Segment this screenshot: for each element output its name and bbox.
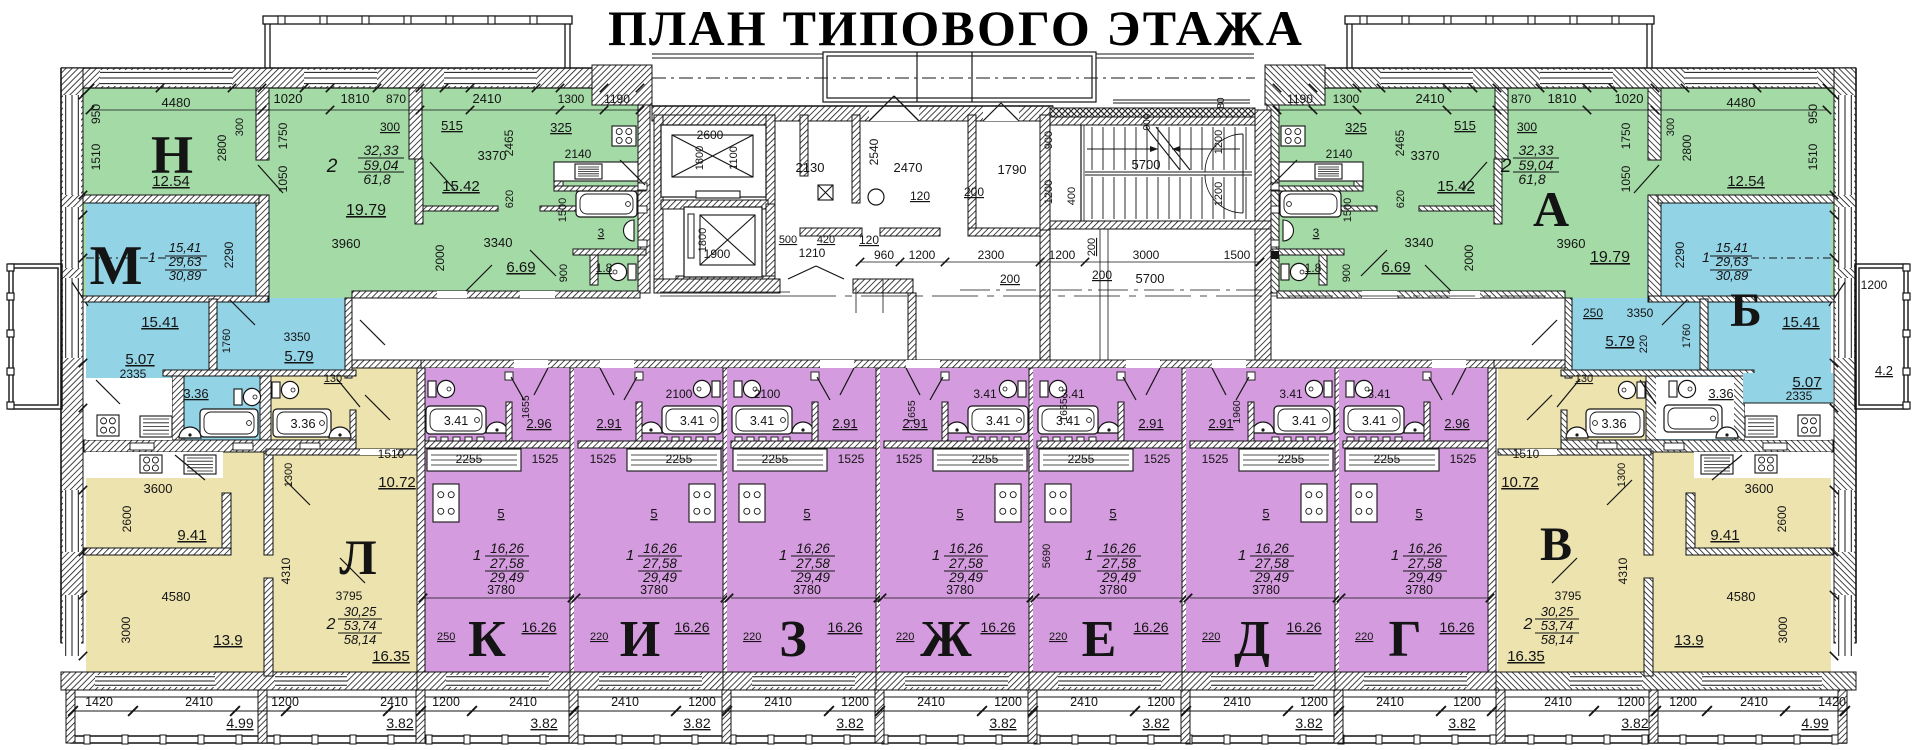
svg-text:2410: 2410 <box>917 695 945 709</box>
svg-text:15,41: 15,41 <box>1716 240 1749 255</box>
svg-text:1200: 1200 <box>841 695 869 709</box>
svg-text:3350: 3350 <box>1627 306 1654 320</box>
svg-text:2100: 2100 <box>754 387 781 401</box>
svg-text:2410: 2410 <box>509 695 537 709</box>
svg-text:220: 220 <box>590 631 608 643</box>
svg-text:4580: 4580 <box>162 589 191 604</box>
svg-text:53,74: 53,74 <box>1541 618 1574 633</box>
svg-text:2.96: 2.96 <box>1444 416 1469 431</box>
svg-text:В: В <box>1540 518 1572 571</box>
svg-text:1525: 1525 <box>532 452 559 466</box>
svg-text:2000: 2000 <box>1462 244 1476 271</box>
svg-text:Б: Б <box>1730 284 1762 337</box>
svg-text:1: 1 <box>1238 547 1246 564</box>
svg-text:2800: 2800 <box>1680 134 1694 161</box>
svg-text:950: 950 <box>1806 104 1820 124</box>
svg-text:3960: 3960 <box>332 236 361 251</box>
svg-text:6.69: 6.69 <box>1381 259 1410 276</box>
svg-text:2335: 2335 <box>120 367 147 381</box>
svg-text:29,63: 29,63 <box>168 254 202 269</box>
svg-text:2410: 2410 <box>1416 91 1445 106</box>
svg-text:61,8: 61,8 <box>1518 171 1545 187</box>
svg-text:9.41: 9.41 <box>177 527 206 544</box>
svg-text:1: 1 <box>1702 249 1710 265</box>
svg-text:1760: 1760 <box>1681 324 1693 348</box>
svg-text:2335: 2335 <box>1786 389 1813 403</box>
svg-text:2540: 2540 <box>867 138 881 165</box>
svg-text:250: 250 <box>1583 306 1603 320</box>
svg-text:1200: 1200 <box>1453 695 1481 709</box>
svg-text:5: 5 <box>1109 506 1116 521</box>
svg-text:2290: 2290 <box>1673 241 1687 268</box>
svg-text:950: 950 <box>89 104 103 124</box>
svg-text:ПЛАН ТИПОВОГО ЭТАЖА: ПЛАН ТИПОВОГО ЭТАЖА <box>608 0 1304 56</box>
svg-text:5700: 5700 <box>1132 157 1161 172</box>
svg-text:16.26: 16.26 <box>1439 619 1474 635</box>
svg-text:3.82: 3.82 <box>530 715 557 731</box>
svg-text:1510: 1510 <box>378 447 405 461</box>
svg-text:220: 220 <box>1355 631 1373 643</box>
svg-text:3.36: 3.36 <box>1708 386 1733 401</box>
svg-text:1200: 1200 <box>688 695 716 709</box>
svg-text:2.91: 2.91 <box>596 416 621 431</box>
svg-text:3780: 3780 <box>1252 583 1280 597</box>
svg-text:15.41: 15.41 <box>1782 314 1820 331</box>
svg-text:1200: 1200 <box>994 695 1022 709</box>
svg-text:2410: 2410 <box>473 91 502 106</box>
svg-text:5.07: 5.07 <box>125 351 154 368</box>
svg-text:К: К <box>468 611 506 668</box>
svg-text:13.9: 13.9 <box>1674 632 1703 649</box>
svg-text:1525: 1525 <box>1144 452 1171 466</box>
svg-text:61,8: 61,8 <box>363 171 390 187</box>
svg-text:220: 220 <box>743 631 761 643</box>
svg-text:32,33: 32,33 <box>1518 142 1553 158</box>
svg-text:1200: 1200 <box>1213 130 1225 154</box>
svg-text:4.99: 4.99 <box>1801 715 1828 731</box>
svg-text:1200: 1200 <box>1213 182 1225 206</box>
svg-text:1510: 1510 <box>1513 447 1540 461</box>
svg-text:420: 420 <box>817 234 835 246</box>
svg-text:1200: 1200 <box>1043 180 1055 204</box>
svg-text:3.41: 3.41 <box>1279 387 1303 401</box>
svg-text:2130: 2130 <box>796 160 825 175</box>
svg-text:3000: 3000 <box>1133 248 1160 262</box>
svg-text:870: 870 <box>386 92 406 106</box>
svg-text:15.41: 15.41 <box>141 314 179 331</box>
svg-text:15,41: 15,41 <box>169 240 202 255</box>
svg-text:2600: 2600 <box>697 128 724 142</box>
svg-text:620: 620 <box>1395 190 1407 208</box>
svg-text:1655: 1655 <box>906 400 918 424</box>
svg-text:3340: 3340 <box>484 235 513 250</box>
svg-text:1.8: 1.8 <box>1305 261 1322 275</box>
svg-text:3.36: 3.36 <box>290 416 315 431</box>
svg-text:1200: 1200 <box>1669 695 1697 709</box>
svg-text:30,25: 30,25 <box>344 604 377 619</box>
svg-text:3.82: 3.82 <box>1621 715 1648 731</box>
svg-text:3370: 3370 <box>1411 148 1440 163</box>
svg-text:220: 220 <box>1202 631 1220 643</box>
svg-text:5700: 5700 <box>1136 271 1165 286</box>
svg-text:1: 1 <box>932 547 940 564</box>
svg-text:16,26: 16,26 <box>1102 541 1136 556</box>
svg-text:2600: 2600 <box>1775 505 1789 532</box>
svg-text:2.91: 2.91 <box>1138 416 1163 431</box>
svg-text:1200: 1200 <box>1147 695 1175 709</box>
svg-text:5: 5 <box>497 506 504 521</box>
svg-text:120: 120 <box>859 233 879 247</box>
svg-text:1750: 1750 <box>1619 122 1633 149</box>
svg-text:3.41: 3.41 <box>1362 414 1386 428</box>
svg-text:16.26: 16.26 <box>1133 619 1168 635</box>
svg-text:27,58: 27,58 <box>489 556 524 571</box>
svg-text:3370: 3370 <box>478 148 507 163</box>
svg-text:1200: 1200 <box>432 695 460 709</box>
svg-text:1800: 1800 <box>694 146 706 170</box>
svg-text:130: 130 <box>1575 373 1593 385</box>
svg-text:16.26: 16.26 <box>674 619 709 635</box>
svg-text:960: 960 <box>874 248 894 262</box>
svg-text:3.41: 3.41 <box>680 414 704 428</box>
svg-text:1525: 1525 <box>896 452 923 466</box>
svg-text:1200: 1200 <box>1300 695 1328 709</box>
svg-text:2410: 2410 <box>380 695 408 709</box>
svg-text:3.36: 3.36 <box>183 386 208 401</box>
svg-text:3000: 3000 <box>1776 616 1790 643</box>
svg-text:1750: 1750 <box>276 122 290 149</box>
svg-text:2410: 2410 <box>1376 695 1404 709</box>
svg-text:16.26: 16.26 <box>521 619 556 635</box>
svg-text:Е: Е <box>1082 611 1117 668</box>
svg-text:3780: 3780 <box>1099 583 1127 597</box>
svg-text:1810: 1810 <box>1548 91 1577 106</box>
svg-text:3.41: 3.41 <box>986 414 1010 428</box>
svg-text:3.82: 3.82 <box>1448 715 1475 731</box>
svg-text:200: 200 <box>1086 238 1098 256</box>
svg-text:30,89: 30,89 <box>169 268 202 283</box>
svg-text:300: 300 <box>1665 118 1677 136</box>
svg-text:80: 80 <box>1216 97 1227 109</box>
svg-text:2465: 2465 <box>1393 129 1407 156</box>
svg-text:325: 325 <box>1345 120 1367 135</box>
svg-text:2.91: 2.91 <box>1208 416 1233 431</box>
svg-text:6.69: 6.69 <box>506 259 535 276</box>
svg-text:1525: 1525 <box>590 452 617 466</box>
svg-text:3600: 3600 <box>144 481 173 496</box>
svg-text:900: 900 <box>1341 264 1353 282</box>
svg-text:300: 300 <box>1517 120 1537 134</box>
svg-text:1: 1 <box>1085 547 1093 564</box>
svg-text:2: 2 <box>326 616 336 633</box>
svg-text:16,26: 16,26 <box>949 541 983 556</box>
svg-text:Г: Г <box>1388 611 1421 668</box>
svg-text:1420: 1420 <box>1818 695 1846 709</box>
svg-text:5: 5 <box>650 506 657 521</box>
svg-text:1510: 1510 <box>1806 143 1820 170</box>
svg-text:2255: 2255 <box>1374 452 1401 466</box>
svg-text:1: 1 <box>1391 547 1399 564</box>
svg-text:Ж: Ж <box>920 611 972 668</box>
svg-text:1790: 1790 <box>998 162 1027 177</box>
svg-text:2: 2 <box>1500 156 1512 177</box>
svg-text:5690: 5690 <box>1041 544 1053 568</box>
svg-text:1200: 1200 <box>909 248 936 262</box>
svg-text:5: 5 <box>956 506 963 521</box>
svg-text:1500: 1500 <box>557 198 569 222</box>
svg-text:32,33: 32,33 <box>363 142 398 158</box>
svg-text:19.79: 19.79 <box>1590 249 1630 266</box>
svg-text:250: 250 <box>437 631 455 643</box>
svg-text:3.82: 3.82 <box>836 715 863 731</box>
svg-text:2140: 2140 <box>565 147 592 161</box>
svg-text:5: 5 <box>1415 506 1422 521</box>
svg-text:15.42: 15.42 <box>1437 178 1475 195</box>
svg-text:1420: 1420 <box>85 695 113 709</box>
svg-text:4310: 4310 <box>279 557 293 584</box>
svg-text:2300: 2300 <box>978 248 1005 262</box>
svg-text:620: 620 <box>504 190 516 208</box>
svg-text:870: 870 <box>1511 92 1531 106</box>
svg-text:5: 5 <box>1262 506 1269 521</box>
svg-text:16,26: 16,26 <box>1255 541 1289 556</box>
svg-text:3.82: 3.82 <box>1142 715 1169 731</box>
svg-text:16.26: 16.26 <box>827 619 862 635</box>
svg-text:12.54: 12.54 <box>1727 173 1765 190</box>
svg-text:3.41: 3.41 <box>1292 414 1316 428</box>
svg-text:2: 2 <box>326 156 338 177</box>
svg-text:53,74: 53,74 <box>344 618 377 633</box>
svg-text:1300: 1300 <box>1333 92 1360 106</box>
svg-text:900: 900 <box>1142 113 1153 130</box>
svg-text:220: 220 <box>896 631 914 643</box>
svg-text:2: 2 <box>1523 616 1533 633</box>
svg-text:1.8: 1.8 <box>596 261 613 275</box>
svg-text:3: 3 <box>598 226 605 240</box>
svg-text:30,25: 30,25 <box>1541 604 1574 619</box>
svg-text:16,26: 16,26 <box>796 541 830 556</box>
svg-text:4.2: 4.2 <box>1875 363 1893 378</box>
svg-text:1: 1 <box>473 547 481 564</box>
svg-text:2255: 2255 <box>1068 452 1095 466</box>
svg-text:1200: 1200 <box>1861 278 1888 292</box>
svg-text:2410: 2410 <box>185 695 213 709</box>
svg-text:220: 220 <box>1049 631 1067 643</box>
svg-text:3780: 3780 <box>640 583 668 597</box>
svg-text:3: 3 <box>1313 226 1320 240</box>
svg-text:130: 130 <box>324 373 342 385</box>
svg-text:4310: 4310 <box>1616 557 1630 584</box>
svg-text:3.41: 3.41 <box>973 387 997 401</box>
svg-text:3.82: 3.82 <box>386 715 413 731</box>
svg-text:2410: 2410 <box>1544 695 1572 709</box>
svg-text:2470: 2470 <box>894 160 923 175</box>
svg-text:1300: 1300 <box>558 92 585 106</box>
svg-text:3.41: 3.41 <box>1367 387 1391 401</box>
svg-text:27,58: 27,58 <box>1407 556 1442 571</box>
svg-text:13.9: 13.9 <box>213 632 242 649</box>
svg-text:1: 1 <box>148 249 156 265</box>
svg-text:3780: 3780 <box>1405 583 1433 597</box>
svg-text:15.42: 15.42 <box>442 178 480 195</box>
svg-text:5.79: 5.79 <box>284 348 313 365</box>
svg-text:515: 515 <box>1454 118 1476 133</box>
svg-text:5: 5 <box>803 506 810 521</box>
svg-text:Д: Д <box>1234 611 1270 668</box>
svg-text:900: 900 <box>1043 131 1055 149</box>
svg-text:16,26: 16,26 <box>1408 541 1442 556</box>
svg-text:1210: 1210 <box>799 246 826 260</box>
svg-text:16.35: 16.35 <box>1507 648 1545 665</box>
svg-text:900: 900 <box>558 264 570 282</box>
svg-text:120: 120 <box>910 189 930 203</box>
svg-text:1510: 1510 <box>89 143 103 170</box>
svg-text:5.79: 5.79 <box>1605 333 1634 350</box>
svg-text:3795: 3795 <box>1555 589 1582 603</box>
svg-text:1050: 1050 <box>1619 165 1633 192</box>
svg-text:58,14: 58,14 <box>344 632 377 647</box>
svg-text:2410: 2410 <box>611 695 639 709</box>
svg-text:3.82: 3.82 <box>683 715 710 731</box>
svg-text:1525: 1525 <box>838 452 865 466</box>
svg-text:16,26: 16,26 <box>643 541 677 556</box>
svg-text:З: З <box>779 611 806 668</box>
svg-text:2255: 2255 <box>972 452 999 466</box>
svg-text:1050: 1050 <box>276 165 290 192</box>
svg-text:2410: 2410 <box>1740 695 1768 709</box>
svg-text:2600: 2600 <box>120 505 134 532</box>
svg-text:2000: 2000 <box>433 244 447 271</box>
svg-text:1525: 1525 <box>1450 452 1477 466</box>
svg-text:3340: 3340 <box>1405 235 1434 250</box>
svg-text:2410: 2410 <box>764 695 792 709</box>
svg-text:3960: 3960 <box>1557 236 1586 251</box>
svg-text:30,89: 30,89 <box>1716 268 1749 283</box>
svg-text:2410: 2410 <box>1070 695 1098 709</box>
svg-text:400: 400 <box>1066 187 1078 205</box>
svg-text:500: 500 <box>779 234 797 246</box>
svg-text:2255: 2255 <box>456 452 483 466</box>
svg-text:1810: 1810 <box>341 91 370 106</box>
svg-text:300: 300 <box>234 118 246 136</box>
svg-text:16.26: 16.26 <box>980 619 1015 635</box>
svg-text:325: 325 <box>550 120 572 135</box>
svg-text:1960: 1960 <box>1231 400 1243 424</box>
svg-text:58,14: 58,14 <box>1541 632 1574 647</box>
svg-text:16.35: 16.35 <box>372 648 410 665</box>
svg-text:3350: 3350 <box>284 330 311 344</box>
svg-text:4480: 4480 <box>162 95 191 110</box>
svg-text:2.91: 2.91 <box>832 416 857 431</box>
svg-text:1200: 1200 <box>271 695 299 709</box>
svg-text:300: 300 <box>380 120 400 134</box>
svg-text:1525: 1525 <box>1202 452 1229 466</box>
svg-text:27,58: 27,58 <box>948 556 983 571</box>
svg-text:1190: 1190 <box>604 92 630 106</box>
svg-text:1190: 1190 <box>1287 92 1313 106</box>
svg-text:200: 200 <box>964 185 984 199</box>
svg-text:1655: 1655 <box>1058 398 1070 422</box>
svg-text:2290: 2290 <box>222 241 236 268</box>
svg-text:9.41: 9.41 <box>1710 527 1739 544</box>
svg-text:М: М <box>90 235 143 297</box>
svg-text:2800: 2800 <box>215 134 229 161</box>
svg-text:3600: 3600 <box>1745 481 1774 496</box>
svg-text:1200: 1200 <box>1617 695 1645 709</box>
svg-text:2100: 2100 <box>666 387 693 401</box>
svg-text:А: А <box>1533 181 1569 237</box>
svg-text:12.54: 12.54 <box>152 173 190 190</box>
svg-text:29,63: 29,63 <box>1715 254 1749 269</box>
svg-text:2410: 2410 <box>1223 695 1251 709</box>
svg-text:220: 220 <box>1638 335 1650 353</box>
svg-text:4580: 4580 <box>1727 589 1756 604</box>
svg-text:3.41: 3.41 <box>444 414 468 428</box>
svg-text:1300: 1300 <box>283 463 295 487</box>
svg-text:1020: 1020 <box>1615 91 1644 106</box>
svg-text:200: 200 <box>1092 268 1112 282</box>
svg-text:2255: 2255 <box>1278 452 1305 466</box>
svg-text:19.79: 19.79 <box>346 202 386 219</box>
svg-text:1500: 1500 <box>1224 248 1251 262</box>
svg-text:3780: 3780 <box>487 583 515 597</box>
svg-text:3.41: 3.41 <box>750 414 774 428</box>
svg-text:200: 200 <box>1000 272 1020 286</box>
svg-text:1800: 1800 <box>697 228 709 252</box>
svg-text:1655: 1655 <box>520 395 532 419</box>
svg-text:3.36: 3.36 <box>1601 416 1626 431</box>
svg-text:1: 1 <box>626 547 634 564</box>
svg-text:1200: 1200 <box>1049 248 1076 262</box>
svg-text:4480: 4480 <box>1727 95 1756 110</box>
svg-text:И: И <box>620 611 660 668</box>
svg-text:1760: 1760 <box>221 329 233 353</box>
svg-text:3795: 3795 <box>336 589 363 603</box>
svg-text:3.82: 3.82 <box>1295 715 1322 731</box>
svg-text:27,58: 27,58 <box>795 556 830 571</box>
svg-text:1300: 1300 <box>1616 463 1628 487</box>
svg-text:3.82: 3.82 <box>989 715 1016 731</box>
svg-text:3000: 3000 <box>119 616 133 643</box>
svg-text:3780: 3780 <box>946 583 974 597</box>
svg-text:1020: 1020 <box>274 91 303 106</box>
svg-text:2255: 2255 <box>762 452 789 466</box>
svg-text:515: 515 <box>441 118 463 133</box>
svg-text:1: 1 <box>779 547 787 564</box>
svg-text:4.99: 4.99 <box>226 715 253 731</box>
svg-text:10.72: 10.72 <box>378 474 416 491</box>
svg-text:1100: 1100 <box>728 146 740 170</box>
svg-text:27,58: 27,58 <box>642 556 677 571</box>
svg-text:27,58: 27,58 <box>1101 556 1136 571</box>
svg-text:3780: 3780 <box>793 583 821 597</box>
svg-text:10.72: 10.72 <box>1501 474 1539 491</box>
svg-text:27,58: 27,58 <box>1254 556 1289 571</box>
svg-text:2140: 2140 <box>1326 147 1353 161</box>
svg-text:2255: 2255 <box>666 452 693 466</box>
svg-text:Л: Л <box>339 529 376 585</box>
svg-text:16,26: 16,26 <box>490 541 524 556</box>
svg-text:1500: 1500 <box>1342 198 1354 222</box>
svg-text:16.26: 16.26 <box>1286 619 1321 635</box>
